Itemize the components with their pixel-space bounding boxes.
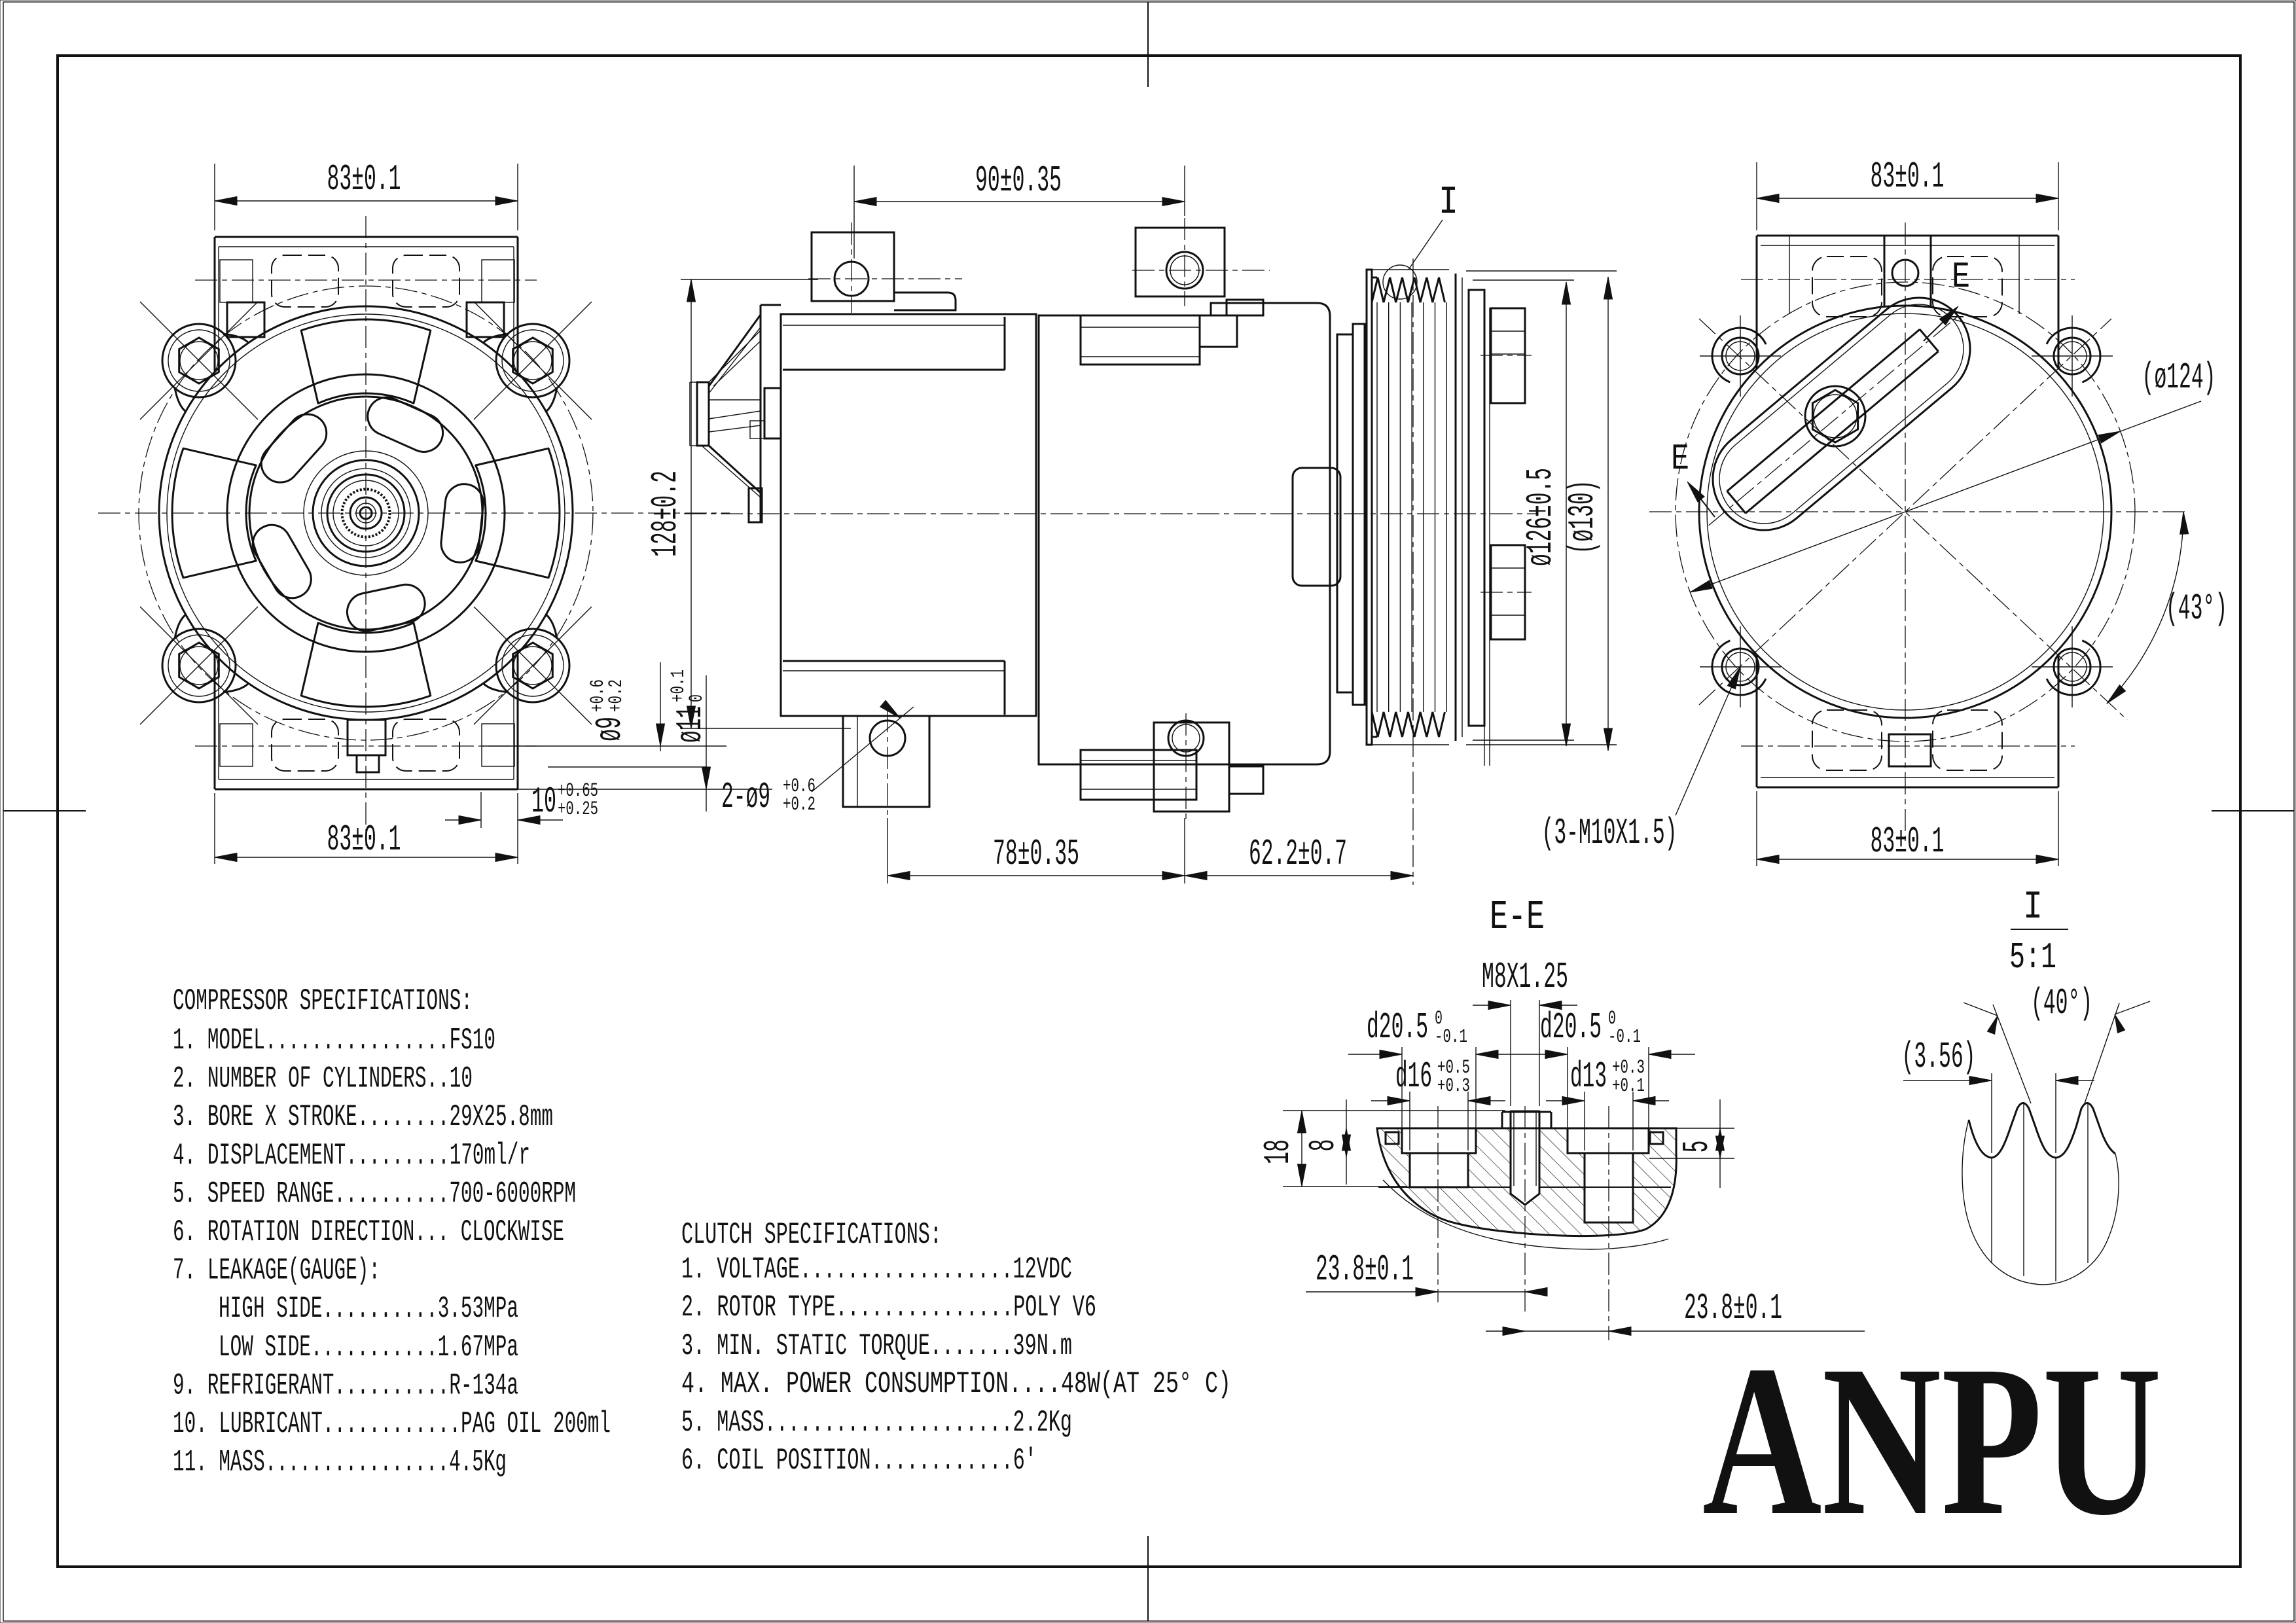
svg-text:4. MAX. POWER CONSUMPTION....4: 4. MAX. POWER CONSUMPTION....48W(AT 25° … [681, 1367, 1231, 1401]
svg-text:3. MIN. STATIC TORQUE.......39: 3. MIN. STATIC TORQUE.......39N.m [681, 1329, 1072, 1363]
svg-text:+0.2: +0.2 [783, 794, 816, 816]
svg-text:5. SPEED RANGE..........700-60: 5. SPEED RANGE..........700-6000RPM [173, 1177, 576, 1211]
svg-text:E: E [1952, 256, 1970, 298]
svg-text:CLUTCH SPECIFICATIONS:: CLUTCH SPECIFICATIONS: [681, 1218, 942, 1252]
svg-text:(ø130): (ø130) [1562, 480, 1604, 554]
svg-text:18: 18 [1257, 1139, 1299, 1164]
svg-text:d20.5: d20.5 [1540, 1007, 1602, 1048]
svg-text:9. REFRIGERANT..........R-134a: 9. REFRIGERANT..........R-134a [173, 1368, 518, 1402]
svg-text:(43°): (43°) [2166, 588, 2227, 630]
svg-text:83±0.1: 83±0.1 [327, 158, 401, 200]
svg-text:(ø124): (ø124) [2142, 357, 2216, 399]
svg-text:5:1: 5:1 [2009, 936, 2056, 978]
svg-text:4. DISPLACEMENT.........170ml/: 4. DISPLACEMENT.........170ml/r [173, 1139, 530, 1173]
svg-text:90±0.35: 90±0.35 [975, 160, 1062, 202]
svg-text:-0.1: -0.1 [1608, 1026, 1641, 1048]
svg-text:2. ROTOR TYPE...............PO: 2. ROTOR TYPE...............POLY V6 [681, 1291, 1096, 1325]
svg-text:+0.2: +0.2 [605, 679, 628, 712]
svg-text:83±0.1: 83±0.1 [1871, 821, 1945, 863]
svg-text:E-E: E-E [1490, 894, 1545, 940]
svg-text:6. COIL POSITION............6': 6. COIL POSITION............6' [681, 1444, 1037, 1478]
svg-text:2-ø9: 2-ø9 [721, 776, 770, 818]
svg-text:I: I [2023, 885, 2043, 930]
svg-text:0: 0 [686, 694, 708, 702]
svg-text:5: 5 [1676, 1141, 1718, 1153]
svg-text:3. BORE X STROKE........29X25.: 3. BORE X STROKE........29X25.8mm [173, 1100, 553, 1134]
svg-text:ANPU: ANPU [1702, 1321, 2162, 1560]
svg-text:LOW SIDE...........1.67MPa: LOW SIDE...........1.67MPa [219, 1330, 518, 1364]
svg-text:83±0.1: 83±0.1 [1871, 156, 1945, 198]
svg-text:1. VOLTAGE..................12: 1. VOLTAGE..................12VDC [681, 1253, 1072, 1287]
svg-text:+0.1: +0.1 [1612, 1075, 1645, 1097]
svg-text:1. MODEL................FS10: 1. MODEL................FS10 [173, 1024, 495, 1058]
svg-text:E: E [1671, 438, 1689, 480]
svg-text:10: 10 [531, 781, 556, 823]
svg-text:ø126±0.5: ø126±0.5 [1520, 468, 1562, 566]
svg-text:d20.5: d20.5 [1367, 1007, 1428, 1048]
svg-text:8: 8 [1302, 1139, 1344, 1152]
svg-text:d13: d13 [1570, 1056, 1607, 1097]
svg-text:(3.56): (3.56) [1902, 1036, 1976, 1078]
svg-text:10. LUBRICANT............PAG O: 10. LUBRICANT............PAG OIL 200ml [173, 1407, 611, 1441]
svg-text:(40°): (40°) [2031, 982, 2092, 1024]
svg-text:ø9: ø9 [589, 717, 631, 741]
svg-text:7. LEAKAGE(GAUGE):: 7. LEAKAGE(GAUGE): [173, 1254, 380, 1288]
svg-text:78±0.35: 78±0.35 [993, 833, 1079, 875]
svg-text:d16: d16 [1395, 1056, 1432, 1097]
svg-text:M8X1.25: M8X1.25 [1482, 956, 1568, 998]
svg-text:I: I [1439, 181, 1458, 225]
svg-text:(3-M10X1.5): (3-M10X1.5) [1542, 812, 1677, 854]
svg-text:+0.3: +0.3 [1437, 1075, 1470, 1097]
svg-text:COMPRESSOR SPECIFICATIONS:: COMPRESSOR SPECIFICATIONS: [173, 984, 473, 1018]
svg-text:83±0.1: 83±0.1 [327, 819, 401, 861]
svg-text:6. ROTATION DIRECTION... CLOCK: 6. ROTATION DIRECTION... CLOCKWISE [173, 1215, 564, 1249]
svg-text:+0.25: +0.25 [558, 798, 598, 821]
svg-text:-0.1: -0.1 [1435, 1026, 1467, 1048]
svg-text:128±0.2: 128±0.2 [645, 471, 687, 557]
svg-text:2. NUMBER OF CYLINDERS..10: 2. NUMBER OF CYLINDERS..10 [173, 1062, 473, 1096]
svg-text:HIGH SIDE..........3.53MPa: HIGH SIDE..........3.53MPa [219, 1292, 518, 1326]
svg-text:11. MASS................4.5Kg: 11. MASS................4.5Kg [173, 1446, 507, 1480]
svg-text:5. MASS.....................2.: 5. MASS.....................2.2Kg [681, 1406, 1072, 1440]
svg-text:62.2±0.7: 62.2±0.7 [1249, 833, 1347, 875]
svg-text:23.8±0.1: 23.8±0.1 [1316, 1249, 1414, 1291]
